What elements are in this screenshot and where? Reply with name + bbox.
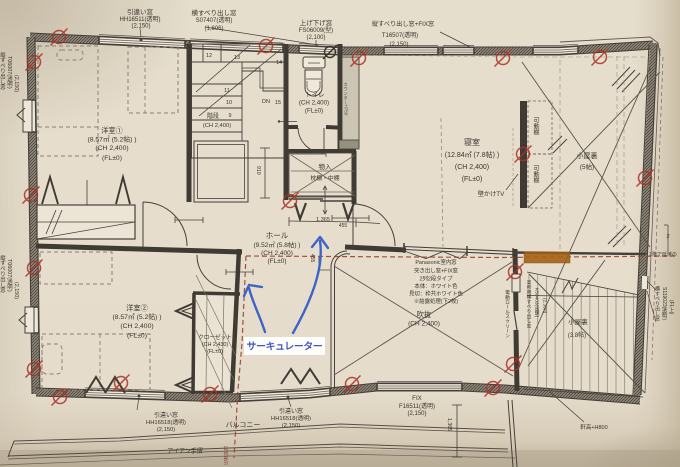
svg-text:T06007(透明): T06007(透明) xyxy=(6,259,13,292)
svg-text:DN: DN xyxy=(262,99,270,105)
svg-text:バルコニー: バルコニー xyxy=(226,421,261,429)
svg-text:階段: 階段 xyxy=(207,112,219,120)
svg-text:吹抜: 吹抜 xyxy=(417,310,431,319)
svg-text:(FL±0): (FL±0) xyxy=(305,108,323,115)
svg-text:突き出し窓+FIX窓: 突き出し窓+FIX窓 xyxy=(414,267,458,275)
svg-text:延焼部分: 延焼部分 xyxy=(223,445,228,466)
svg-text:(2,150): (2,150) xyxy=(282,423,300,429)
svg-text:洋室①: 洋室① xyxy=(101,126,123,135)
svg-text:HH16518(透明): HH16518(透明) xyxy=(271,414,311,422)
svg-text:HH16511(透明): HH16511(透明) xyxy=(120,15,161,23)
svg-text:2: 2 xyxy=(666,234,669,240)
svg-text:寝室: 寝室 xyxy=(464,137,480,147)
svg-text:2階で延焼の: 2階で延焼の xyxy=(649,251,677,258)
svg-text:1,365: 1,365 xyxy=(446,418,452,431)
svg-text:(8.57㎡ (5.2帖) ): (8.57㎡ (5.2帖) ) xyxy=(87,135,136,144)
svg-text:(2,100): (2,100) xyxy=(306,35,325,41)
svg-text:(FL±0): (FL±0) xyxy=(127,333,147,340)
svg-text:アイアン手摺: アイアン手摺 xyxy=(167,447,202,455)
svg-text:(5帖): (5帖) xyxy=(580,162,594,171)
svg-text:(CH 2,400): (CH 2,400) xyxy=(120,323,153,330)
svg-text:横すべり出し窓: 横すべり出し窓 xyxy=(654,285,660,321)
svg-text:455: 455 xyxy=(339,223,348,229)
svg-text:上げ下げ窓: 上げ下げ窓 xyxy=(300,18,333,27)
svg-text:(1,606): (1,606) xyxy=(204,26,223,32)
svg-text:10: 10 xyxy=(226,100,232,106)
svg-text:(CH 2,400): (CH 2,400) xyxy=(203,123,231,129)
svg-text:1,365: 1,365 xyxy=(316,217,330,223)
svg-text:縦すべり出し窓: 縦すべり出し窓 xyxy=(0,51,6,90)
svg-text:13: 13 xyxy=(234,55,240,61)
svg-text:(2,150): (2,150) xyxy=(389,42,408,48)
svg-text:サーキュレーター: サーキュレーター xyxy=(247,341,323,353)
svg-text:455: 455 xyxy=(309,254,315,263)
svg-text:(FL±0): (FL±0) xyxy=(462,176,483,183)
svg-text:(2,150): (2,150) xyxy=(13,75,19,92)
svg-text:小屋裏: 小屋裏 xyxy=(568,317,588,326)
svg-text:9: 9 xyxy=(228,113,231,119)
svg-text:(9.52㎡ (5.8帖) ): (9.52㎡ (5.8帖) ) xyxy=(254,240,301,249)
svg-text:F16511(透明): F16511(透明) xyxy=(399,402,435,410)
svg-text:910: 910 xyxy=(255,166,261,175)
svg-text:ホール: ホール xyxy=(266,231,289,240)
svg-text:軒高+H800: 軒高+H800 xyxy=(580,423,607,431)
svg-text:(8.57㎡ (5.2帖) ): (8.57㎡ (5.2帖) ) xyxy=(112,312,161,321)
svg-text:12: 12 xyxy=(206,53,212,59)
svg-text:壁かけTV: 壁かけTV xyxy=(478,190,505,198)
svg-text:縦すべり出し窓: 縦すべり出し窓 xyxy=(0,254,6,293)
svg-text:HH16518(透明): HH16518(透明) xyxy=(146,418,186,426)
svg-text:(12.84㎡ (7.8帖) ): (12.84㎡ (7.8帖) ) xyxy=(445,150,499,159)
svg-text:電動ロールスクリーン: 電動ロールスクリーン xyxy=(504,290,509,338)
svg-text:(CH 2,400): (CH 2,400) xyxy=(261,250,293,257)
svg-text:FIX: FIX xyxy=(412,395,422,402)
svg-text:見切：枠共ホワイト色: 見切：枠共ホワイト色 xyxy=(409,290,464,298)
svg-text:FS06009(型): FS06009(型) xyxy=(299,26,333,34)
svg-text:(2,150): (2,150) xyxy=(13,282,19,299)
svg-text:本体：ホワイト色: 本体：ホワイト色 xyxy=(414,282,458,290)
svg-text:(FL±0): (FL±0) xyxy=(102,155,122,162)
svg-text:S07407(透明): S07407(透明) xyxy=(196,16,233,24)
svg-text:物入: 物入 xyxy=(319,162,333,171)
svg-text:(FL±0): (FL±0) xyxy=(207,349,223,355)
svg-text:(CH 2,400): (CH 2,400) xyxy=(455,164,489,171)
svg-text:T16507(透明): T16507(透明) xyxy=(382,31,418,39)
svg-text:(FL上): (FL上) xyxy=(668,300,674,315)
svg-text:※結露処理(下2枚): ※結露処理(下2枚) xyxy=(414,297,459,305)
svg-text:(CH 2,400): (CH 2,400) xyxy=(408,321,440,328)
svg-text:11: 11 xyxy=(224,88,230,94)
svg-text:2列2段タイプ: 2列2段タイプ xyxy=(420,275,454,283)
svg-text:引違い窓: 引違い窓 xyxy=(279,407,303,415)
svg-text:高所用横すべり出し窓: 高所用横すべり出し窓 xyxy=(526,279,531,328)
svg-text:可動棚: 可動棚 xyxy=(532,117,539,136)
svg-text:(FL±0): (FL±0) xyxy=(267,258,286,265)
svg-text:縦すべり出し窓+FIX窓: 縦すべり出し窓+FIX窓 xyxy=(372,20,434,28)
svg-text:カウンターH750: カウンターH750 xyxy=(343,82,349,116)
svg-text:引違い窓: 引違い窓 xyxy=(127,7,154,16)
svg-text:(2,150): (2,150) xyxy=(131,24,150,30)
svg-text:14: 14 xyxy=(276,60,282,66)
svg-text:15: 15 xyxy=(275,100,281,106)
svg-text:枕棚・中棚: 枕棚・中棚 xyxy=(311,174,340,182)
svg-text:(CH 2,400): (CH 2,400) xyxy=(299,100,329,107)
svg-text:(CH 2,400): (CH 2,400) xyxy=(95,145,128,152)
svg-text:(3.8帖): (3.8帖) xyxy=(568,331,586,339)
svg-text:T06007(透明): T06007(透明) xyxy=(6,56,13,89)
svg-text:Panasonic室内窓: Panasonic室内窓 xyxy=(415,258,457,266)
svg-text:可動棚: 可動棚 xyxy=(532,165,539,184)
svg-text:S119023(透明): S119023(透明) xyxy=(661,287,667,320)
svg-text:横すべり出し窓: 横すべり出し窓 xyxy=(191,8,237,17)
svg-text:(2,150): (2,150) xyxy=(407,411,426,417)
svg-text:(2,150): (2,150) xyxy=(157,427,175,433)
svg-text:小屋裏: 小屋裏 xyxy=(577,151,598,160)
svg-text:(CH 2,430): (CH 2,430) xyxy=(202,342,229,348)
svg-text:クローゼット: クローゼット xyxy=(198,333,232,341)
svg-text:トイレ: トイレ xyxy=(305,92,324,99)
svg-text:引違い窓: 引違い窓 xyxy=(154,411,178,419)
svg-text:洋室②: 洋室② xyxy=(126,304,148,313)
